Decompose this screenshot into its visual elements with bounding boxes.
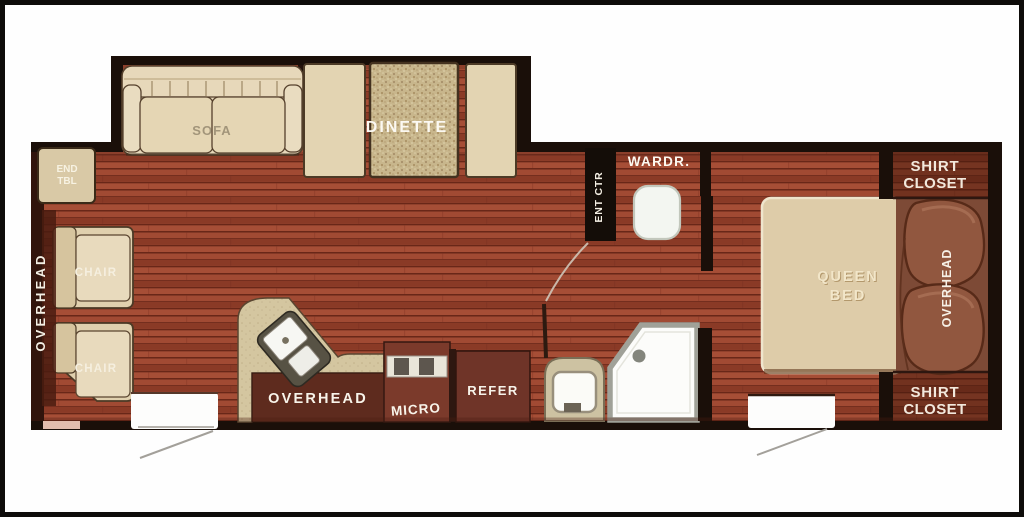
- svg-text:SHIRT: SHIRT: [911, 158, 960, 175]
- svg-text:SHIRT: SHIRT: [911, 384, 960, 401]
- svg-text:BED: BED: [830, 288, 867, 304]
- svg-text:OVERHEAD: OVERHEAD: [268, 391, 368, 407]
- svg-text:CHAIR: CHAIR: [75, 267, 117, 279]
- svg-text:DINETTE: DINETTE: [366, 119, 448, 136]
- svg-text:CLOSET: CLOSET: [903, 175, 966, 192]
- svg-text:END: END: [56, 164, 77, 175]
- svg-text:REFER: REFER: [467, 383, 519, 398]
- svg-text:OVERHEAD: OVERHEAD: [940, 249, 954, 328]
- svg-text:ENT CTR: ENT CTR: [593, 171, 605, 222]
- svg-text:TBL: TBL: [57, 176, 76, 187]
- svg-text:OVERHEAD: OVERHEAD: [33, 252, 48, 351]
- svg-text:WARDR.: WARDR.: [628, 154, 691, 169]
- svg-text:SOFA: SOFA: [192, 123, 231, 138]
- svg-text:CHAIR: CHAIR: [75, 363, 117, 375]
- svg-text:QUEEN: QUEEN: [817, 269, 879, 285]
- svg-text:CLOSET: CLOSET: [903, 401, 966, 418]
